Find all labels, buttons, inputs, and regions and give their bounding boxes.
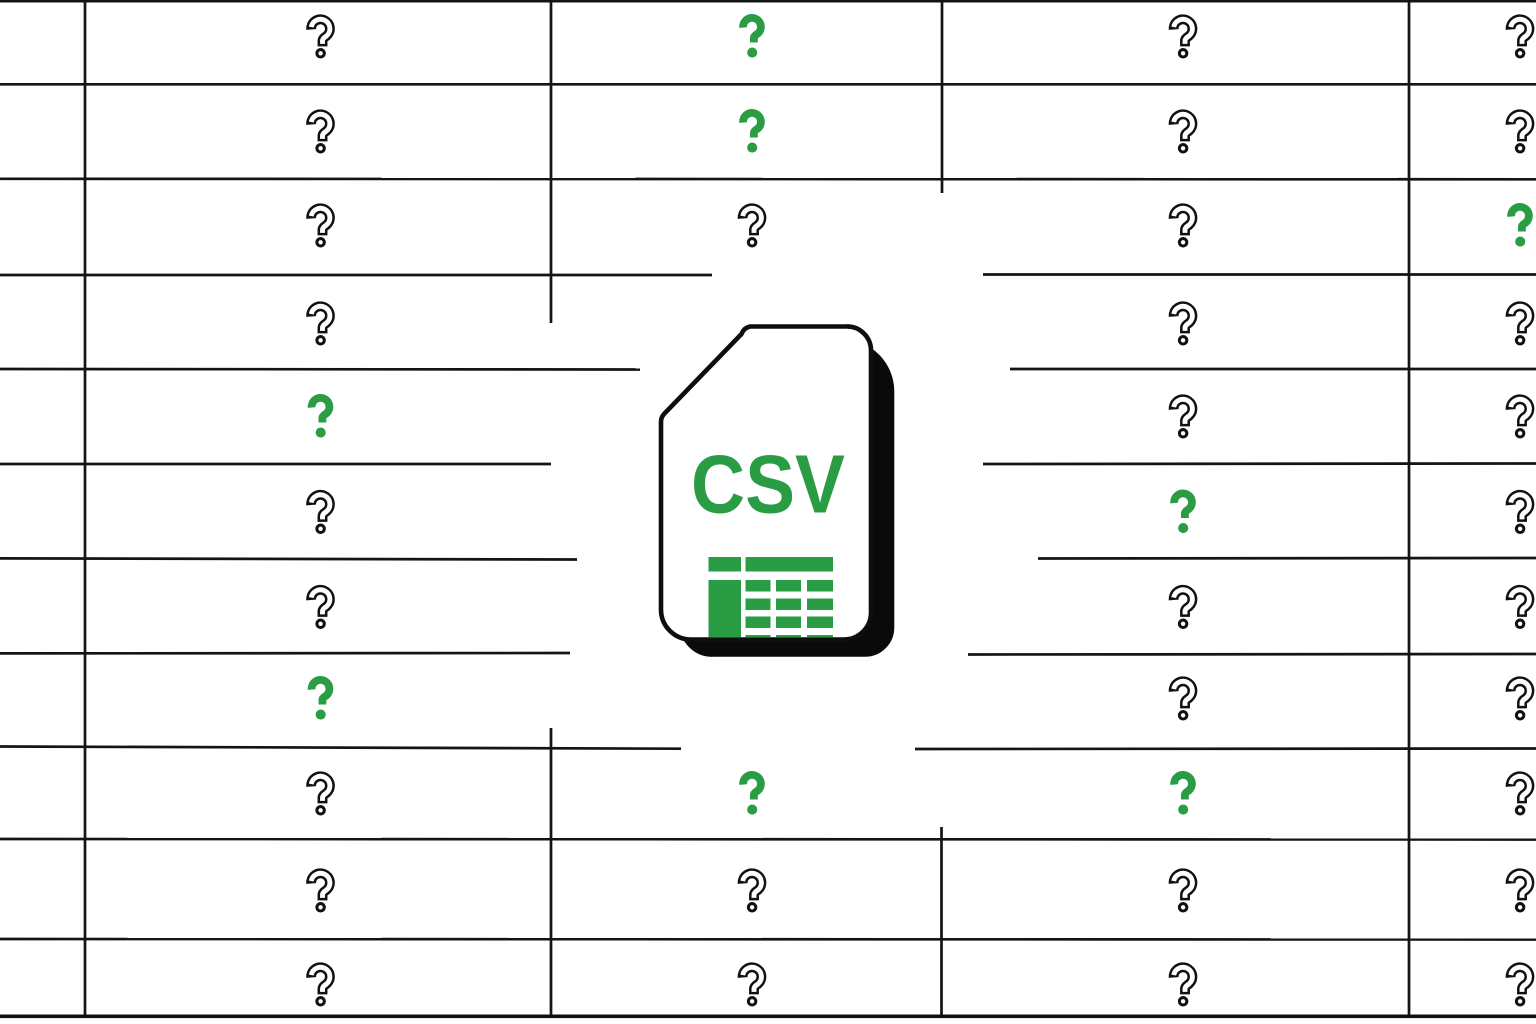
svg-text:CSV: CSV bbox=[691, 439, 845, 531]
